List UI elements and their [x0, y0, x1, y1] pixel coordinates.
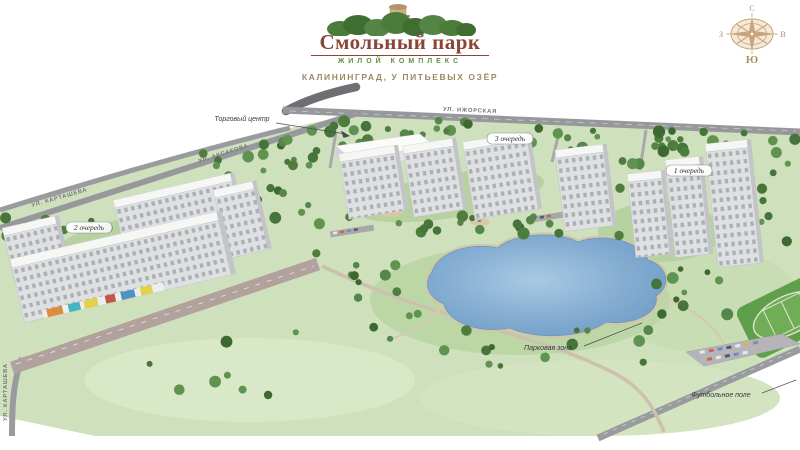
phase-badge-1: 1 очередь [666, 165, 712, 176]
compass-rose: С Ю З В [712, 2, 792, 66]
phase-badge-2: 2 очередь [66, 222, 112, 233]
compass-east-label: В [780, 30, 785, 39]
site-plan-page: УЛ. ИЖОРСКАЯ УЛ. АКСАКОВА УЛ. КАРТАШЕВА … [0, 0, 800, 450]
brand-header: Смольный парк ЖИЛОЙ КОМПЛЕКС КАЛИНИНГРАД… [0, 2, 800, 82]
street-label-kartasheva-side: УЛ. КАРТАШЕВА [3, 363, 9, 421]
compass-north-label: С [749, 4, 754, 13]
svg-text:Парковая зона: Парковая зона [524, 345, 572, 352]
svg-text:3 очередь: 3 очередь [494, 134, 526, 143]
svg-text:Торговый центр: Торговый центр [214, 115, 269, 123]
compass-south-label: Ю [746, 54, 758, 66]
svg-text:2 очередь: 2 очередь [74, 223, 105, 232]
svg-text:1 очередь: 1 очередь [674, 166, 705, 175]
logo-subtitle: ЖИЛОЙ КОМПЛЕКС [0, 58, 800, 65]
logo-title: Смольный парк [311, 31, 488, 56]
lake [428, 235, 666, 336]
location-tagline: КАЛИНИНГРАД, У ПИТЬЕВЫХ ОЗЁР [0, 72, 800, 82]
compass-west-label: З [719, 30, 723, 39]
svg-text:Футбольное поле: Футбольное поле [691, 391, 750, 399]
phase-badge-3: 3 очередь [487, 133, 533, 144]
